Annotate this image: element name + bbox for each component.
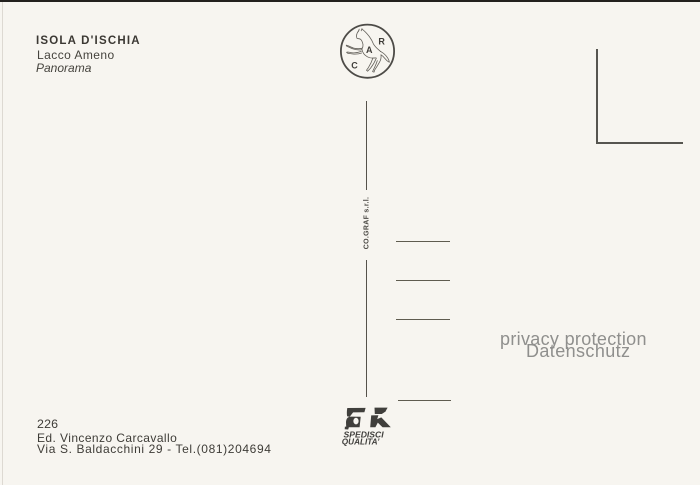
svg-text:R: R (378, 36, 385, 46)
svg-text:QUALITA’: QUALITA’ (342, 437, 380, 446)
svg-text:A: A (366, 45, 373, 55)
svg-text:C: C (351, 61, 358, 71)
